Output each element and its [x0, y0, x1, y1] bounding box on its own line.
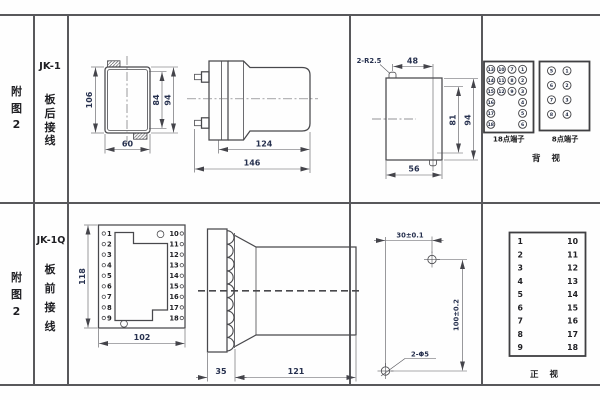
svg-text:18: 18 [567, 343, 578, 352]
svg-text:3: 3 [518, 264, 523, 273]
dim-118: 118 [78, 268, 87, 285]
jk1-rear-and-side-view-drawing: 106 84 94 60 [67, 15, 349, 202]
terminal-numbers-right: 10 11 12 13 14 15 16 17 18 [169, 230, 179, 323]
rear-view-outline [105, 56, 150, 144]
terminal-number: 2 [521, 78, 524, 84]
figure-char: 2 [13, 117, 21, 134]
figure-char: 图 [11, 101, 22, 118]
terminal-number: 13 [488, 67, 494, 73]
svg-text:17: 17 [567, 330, 578, 339]
wiring-char: 接 [45, 298, 56, 317]
svg-text:6: 6 [518, 303, 523, 312]
figure-label-row2: 附 图 2 [0, 269, 33, 320]
svg-text:16: 16 [567, 317, 578, 326]
terminal-table-right-column: 10 11 12 13 14 15 16 17 18 [567, 237, 578, 352]
model-label-jk1: JK-1 [33, 61, 67, 72]
svg-text:13: 13 [169, 262, 179, 270]
dim-106: 106 [85, 91, 94, 108]
svg-text:8: 8 [518, 330, 523, 339]
terminal-number: 7 [510, 67, 513, 73]
dim-94-cutout: 94 [463, 114, 472, 126]
mounting-hole-top [157, 231, 164, 238]
terminal-number: 4 [565, 112, 568, 118]
front-view-outline: 1 2 3 4 5 6 7 8 9 10 11 12 13 14 15 16 1… [99, 225, 186, 328]
terminal-number: 15 [488, 89, 494, 95]
dim-100: 100±0.2 [453, 299, 461, 331]
terminal-number: 1 [565, 69, 568, 75]
terminal-blocks-rear-view: 13 14 15 16 17 18 10 11 12 7 8 9 1 2 3 4… [481, 15, 600, 202]
terminal-number: 3 [565, 98, 568, 104]
terminal-number: 8 [550, 112, 553, 118]
terminal-number: 18 [488, 122, 494, 128]
svg-text:11: 11 [169, 241, 179, 249]
dim-60: 60 [122, 140, 134, 149]
mounting-hole-bottom [121, 320, 128, 327]
terminal-number: 12 [498, 89, 504, 95]
figure-char: 附 [11, 84, 22, 101]
svg-text:5: 5 [107, 272, 112, 280]
svg-text:14: 14 [567, 290, 578, 299]
terminal-number: 10 [498, 67, 504, 73]
side-view-dimensions: 124 146 [195, 129, 311, 173]
wiring-char: 板 [45, 260, 56, 279]
wiring-char: 接 [45, 121, 56, 135]
front-view-label: 正 视 [530, 369, 562, 380]
bolt-top [195, 74, 202, 79]
terminal-block-8: 5 6 7 8 1 2 3 4 8点端子 [540, 62, 590, 144]
dim-81: 81 [448, 114, 457, 126]
terminal-block-18: 13 14 15 16 17 18 10 11 12 7 8 9 1 2 3 4… [484, 62, 534, 144]
terminal-number: 16 [488, 100, 494, 106]
wiring-char: 板 [45, 93, 56, 107]
figure-char: 2 [13, 303, 21, 320]
terminal-number: 14 [488, 78, 494, 84]
dim-56: 56 [408, 165, 420, 174]
svg-text:9: 9 [518, 343, 523, 352]
notch-top [389, 72, 396, 78]
svg-text:3: 3 [107, 251, 112, 259]
terminal-number: 17 [488, 111, 494, 117]
svg-text:7: 7 [518, 317, 523, 326]
terminal-number: 8 [510, 78, 513, 84]
wiring-label-row1: 板 后 接 线 [33, 93, 67, 148]
side-view-outline [187, 61, 318, 140]
drill-holes [378, 252, 441, 380]
terminal-block-18-label: 18点端子 [493, 135, 525, 144]
side-view-dimensions-jk1q: 35 121 [196, 336, 356, 382]
svg-text:9: 9 [107, 314, 112, 322]
svg-text:13: 13 [567, 277, 578, 286]
svg-text:17: 17 [169, 304, 179, 312]
svg-text:4: 4 [107, 262, 112, 270]
terminal-number: 4 [521, 100, 524, 106]
figure-char: 图 [11, 286, 22, 303]
jk1q-front-and-side-view-drawing: 1 2 3 4 5 6 7 8 9 10 11 12 13 14 15 16 1… [67, 202, 349, 385]
bolt-bottom [195, 120, 202, 125]
terminal-table-left-column: 1 2 3 4 5 6 7 8 9 [518, 237, 524, 352]
terminal-block-hatch-bottom [134, 133, 148, 139]
svg-text:14: 14 [169, 272, 179, 280]
svg-text:6: 6 [107, 283, 112, 291]
terminal-number: 11 [498, 78, 504, 84]
svg-text:1: 1 [518, 237, 523, 246]
dim-hole-note: 2-Φ5 [411, 351, 429, 359]
drill-dimensions: 30±0.1 100±0.2 2-Φ5 [374, 232, 467, 377]
svg-text:15: 15 [567, 303, 578, 312]
svg-text:12: 12 [567, 264, 578, 273]
rear-view-dimensions: 106 84 94 60 [85, 67, 178, 154]
technical-drawing-sheet: 附 图 2 JK-1 板 后 接 线 附 图 2 JK-1Q 板 前 接 线 [0, 0, 600, 400]
jk1q-drilling-pattern-drawing: 30±0.1 100±0.2 2-Φ5 [349, 202, 481, 385]
wiring-char: 线 [45, 317, 56, 336]
svg-text:15: 15 [169, 283, 179, 291]
terminal-number: 7 [550, 98, 553, 104]
svg-text:2: 2 [107, 241, 112, 249]
dim-48: 48 [407, 57, 419, 66]
terminal-block-8-label: 8点端子 [552, 135, 579, 144]
wiring-label-row2: 板 前 接 线 [33, 260, 67, 336]
svg-text:12: 12 [169, 251, 179, 259]
dim-84: 84 [152, 94, 161, 106]
dim-30: 30±0.1 [396, 232, 423, 240]
dim-35: 35 [215, 367, 227, 376]
svg-text:11: 11 [567, 250, 578, 259]
terminal-number: 5 [521, 111, 524, 117]
svg-text:2: 2 [518, 250, 523, 259]
rear-view-label: 背 视 [532, 153, 564, 164]
svg-text:18: 18 [169, 314, 179, 322]
wiring-char: 前 [45, 279, 56, 298]
side-view-outline-jk1q [198, 229, 362, 352]
dim-121: 121 [288, 367, 305, 376]
terminal-block-hatch-top [108, 61, 121, 67]
svg-text:8: 8 [107, 304, 112, 312]
dim-146: 146 [244, 159, 261, 168]
terminal-table-front-view: 1 2 3 4 5 6 7 8 9 10 11 12 13 14 15 16 1… [481, 202, 600, 385]
figure-label-row1: 附 图 2 [0, 84, 33, 134]
wiring-char: 后 [45, 107, 56, 121]
svg-text:1: 1 [107, 230, 112, 238]
dim-102: 102 [134, 333, 151, 342]
terminal-number: 6 [550, 83, 553, 89]
terminal-numbers-left: 1 2 3 4 5 6 7 8 9 [107, 230, 112, 323]
cutout-outline [372, 64, 442, 171]
dim-radius-note: 2-R2.5 [357, 57, 382, 65]
svg-text:16: 16 [169, 293, 179, 301]
terminal-number: 5 [550, 69, 553, 75]
figure-char: 附 [11, 269, 22, 286]
svg-text:4: 4 [518, 277, 524, 286]
dim-94: 94 [163, 94, 172, 106]
model-label-jk1q: JK-1Q [33, 235, 69, 246]
jk1-panel-cutout-drawing: 2-R2.5 48 81 94 56 [349, 15, 481, 202]
svg-text:10: 10 [169, 230, 179, 238]
terminal-number: 9 [510, 89, 513, 95]
terminal-number: 2 [565, 83, 568, 89]
svg-text:10: 10 [567, 237, 578, 246]
svg-text:5: 5 [518, 290, 523, 299]
terminal-number: 1 [521, 67, 524, 73]
dim-124: 124 [256, 140, 273, 149]
terminal-number: 6 [521, 122, 524, 128]
wiring-char: 线 [45, 134, 56, 148]
terminal-number: 3 [521, 89, 524, 95]
svg-text:7: 7 [107, 293, 112, 301]
